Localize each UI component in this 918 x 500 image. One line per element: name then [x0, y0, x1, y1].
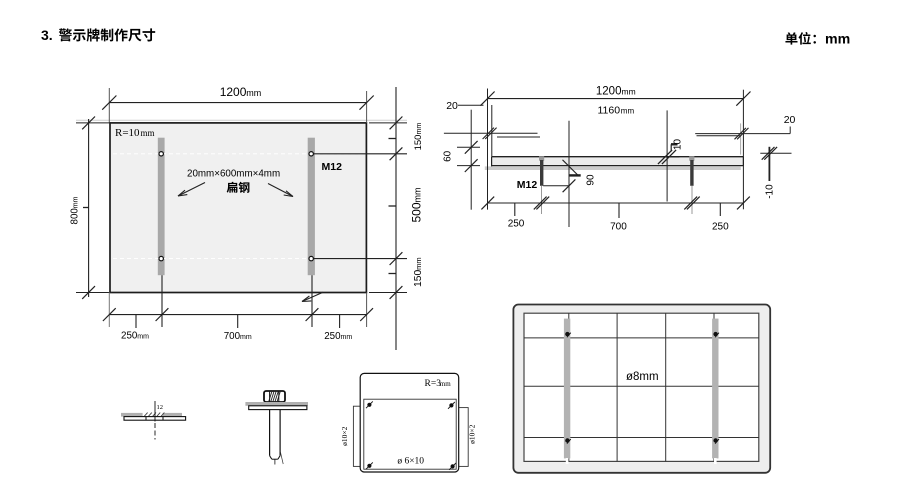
svg-text:250: 250: [121, 331, 138, 342]
svg-text:800: 800: [69, 208, 80, 225]
svg-text:20: 20: [784, 114, 796, 126]
svg-text:250: 250: [324, 331, 341, 342]
svg-text:mm: mm: [414, 257, 423, 270]
svg-text:-10: -10: [765, 184, 776, 199]
svg-text:mm: mm: [141, 128, 155, 138]
svg-text:mm: mm: [413, 188, 423, 203]
svg-text:mm: mm: [72, 196, 79, 208]
svg-text:mm: mm: [621, 107, 635, 116]
svg-text:M12: M12: [322, 161, 343, 173]
svg-text:20mm×600mm×4mm: 20mm×600mm×4mm: [187, 168, 280, 179]
svg-text:ø8mm: ø8mm: [626, 371, 659, 383]
svg-text:250: 250: [508, 219, 525, 230]
svg-text:700: 700: [610, 222, 627, 233]
svg-text:12: 12: [157, 404, 164, 411]
svg-text:mm: mm: [240, 334, 252, 341]
svg-text:mm: mm: [622, 86, 636, 96]
svg-text:150: 150: [413, 270, 424, 287]
svg-text:ø10×2: ø10×2: [340, 426, 349, 445]
svg-text:60: 60: [442, 150, 453, 162]
svg-text:250: 250: [712, 222, 729, 233]
svg-text:10: 10: [673, 139, 684, 151]
svg-text:R=10: R=10: [115, 127, 140, 139]
svg-text:500: 500: [410, 202, 424, 222]
svg-text:mm: mm: [246, 88, 261, 98]
svg-text:90: 90: [585, 174, 596, 186]
svg-text:mm: mm: [440, 380, 451, 388]
svg-text:mm: mm: [416, 123, 423, 135]
svg-text:1160: 1160: [598, 105, 621, 117]
svg-text:150: 150: [413, 135, 424, 151]
svg-text:M12: M12: [517, 179, 538, 191]
svg-text:ø10×2: ø10×2: [467, 424, 476, 443]
svg-text:1200: 1200: [220, 85, 247, 99]
svg-text:ø 6×10: ø 6×10: [397, 456, 424, 466]
svg-text:mm: mm: [341, 334, 353, 341]
svg-text:1200: 1200: [596, 85, 622, 97]
svg-text:mm: mm: [137, 334, 149, 341]
svg-text:20: 20: [446, 100, 458, 112]
svg-text:3.: 3.: [41, 27, 53, 43]
svg-text:mm: mm: [825, 32, 850, 48]
svg-text:700: 700: [224, 331, 241, 342]
svg-text:R=3: R=3: [425, 379, 442, 389]
